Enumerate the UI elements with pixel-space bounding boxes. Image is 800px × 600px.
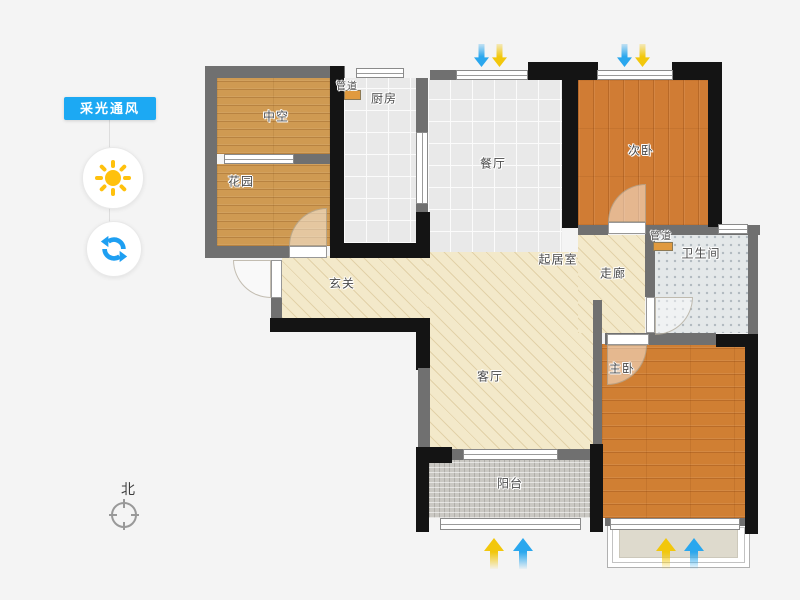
room-label-xuanguan: 玄关 bbox=[329, 275, 355, 292]
wall bbox=[416, 447, 452, 463]
window bbox=[610, 518, 740, 530]
wall bbox=[330, 243, 430, 258]
wall bbox=[416, 78, 428, 134]
window bbox=[718, 224, 748, 234]
compass-icon bbox=[108, 499, 140, 531]
room-label-chufang: 厨房 bbox=[371, 90, 397, 107]
room-label-yangtai: 阳台 bbox=[497, 475, 523, 492]
door-leaf bbox=[607, 334, 649, 345]
wall bbox=[748, 235, 758, 343]
ventilation-refresh-button[interactable] bbox=[86, 221, 142, 277]
wall bbox=[562, 80, 578, 228]
wall bbox=[593, 300, 602, 444]
room-label-zhongkong: 中空 bbox=[263, 108, 289, 125]
room-zoulang bbox=[578, 235, 645, 333]
floorplan-viewer: { "sidebar": { "panel_label": "采光通风", "p… bbox=[0, 0, 800, 600]
wall bbox=[745, 347, 758, 534]
window bbox=[597, 70, 673, 80]
bay-window-sill bbox=[619, 528, 738, 558]
room-label-qijushi: 起居室 bbox=[538, 251, 577, 268]
north-label: 北 bbox=[121, 479, 135, 499]
door-leaf bbox=[646, 297, 655, 333]
wall bbox=[205, 246, 289, 258]
wall bbox=[672, 62, 722, 80]
wall bbox=[271, 298, 282, 320]
wall bbox=[430, 70, 456, 80]
room-label-canting: 餐厅 bbox=[480, 155, 506, 172]
door-leaf bbox=[289, 246, 327, 258]
down-arrow-icon bbox=[474, 44, 489, 67]
wall bbox=[590, 444, 603, 532]
wall bbox=[558, 449, 594, 460]
window bbox=[440, 518, 581, 530]
window bbox=[224, 154, 294, 164]
refresh-icon bbox=[99, 234, 129, 264]
room-label-keting: 客厅 bbox=[477, 368, 503, 385]
down-arrow-icon bbox=[617, 44, 632, 67]
down-arrow-icon bbox=[492, 44, 507, 67]
up-arrow-icon bbox=[484, 538, 504, 569]
room-label-huayuan: 花园 bbox=[228, 173, 254, 190]
room-label-guandao-bath: 管道 bbox=[650, 228, 672, 243]
wall bbox=[270, 318, 428, 332]
room-label-ciwo: 次卧 bbox=[628, 142, 654, 159]
entry-door-leaf bbox=[271, 260, 282, 298]
wall bbox=[528, 62, 578, 80]
wall bbox=[708, 80, 722, 227]
duct-box bbox=[653, 242, 673, 251]
wall bbox=[418, 368, 430, 448]
room-label-zoulang: 走廊 bbox=[600, 265, 626, 282]
down-arrow-icon bbox=[635, 44, 650, 67]
sliding-door bbox=[416, 132, 428, 204]
wall bbox=[205, 66, 217, 258]
room-qijushi-keting bbox=[428, 252, 593, 449]
lighting-ventilation-label[interactable]: 采光通风 bbox=[64, 97, 156, 120]
wall bbox=[716, 334, 758, 347]
wall bbox=[578, 62, 598, 80]
wall bbox=[205, 66, 345, 78]
room-label-zhuwo: 主卧 bbox=[609, 360, 635, 377]
window bbox=[463, 449, 558, 460]
room-label-guandao-kitchen: 管道 bbox=[336, 78, 358, 93]
wall bbox=[416, 463, 429, 532]
door-leaf bbox=[608, 222, 646, 234]
wall bbox=[330, 66, 344, 258]
window bbox=[456, 70, 528, 80]
wall bbox=[578, 225, 608, 235]
up-arrow-icon bbox=[513, 538, 533, 569]
wall bbox=[416, 318, 430, 370]
room-label-weishengjian: 卫生间 bbox=[681, 245, 720, 262]
door-swing-arc bbox=[233, 260, 271, 298]
sunlight-button[interactable] bbox=[82, 147, 144, 209]
window bbox=[356, 68, 404, 78]
wall bbox=[294, 154, 330, 164]
sun-icon bbox=[95, 160, 131, 196]
